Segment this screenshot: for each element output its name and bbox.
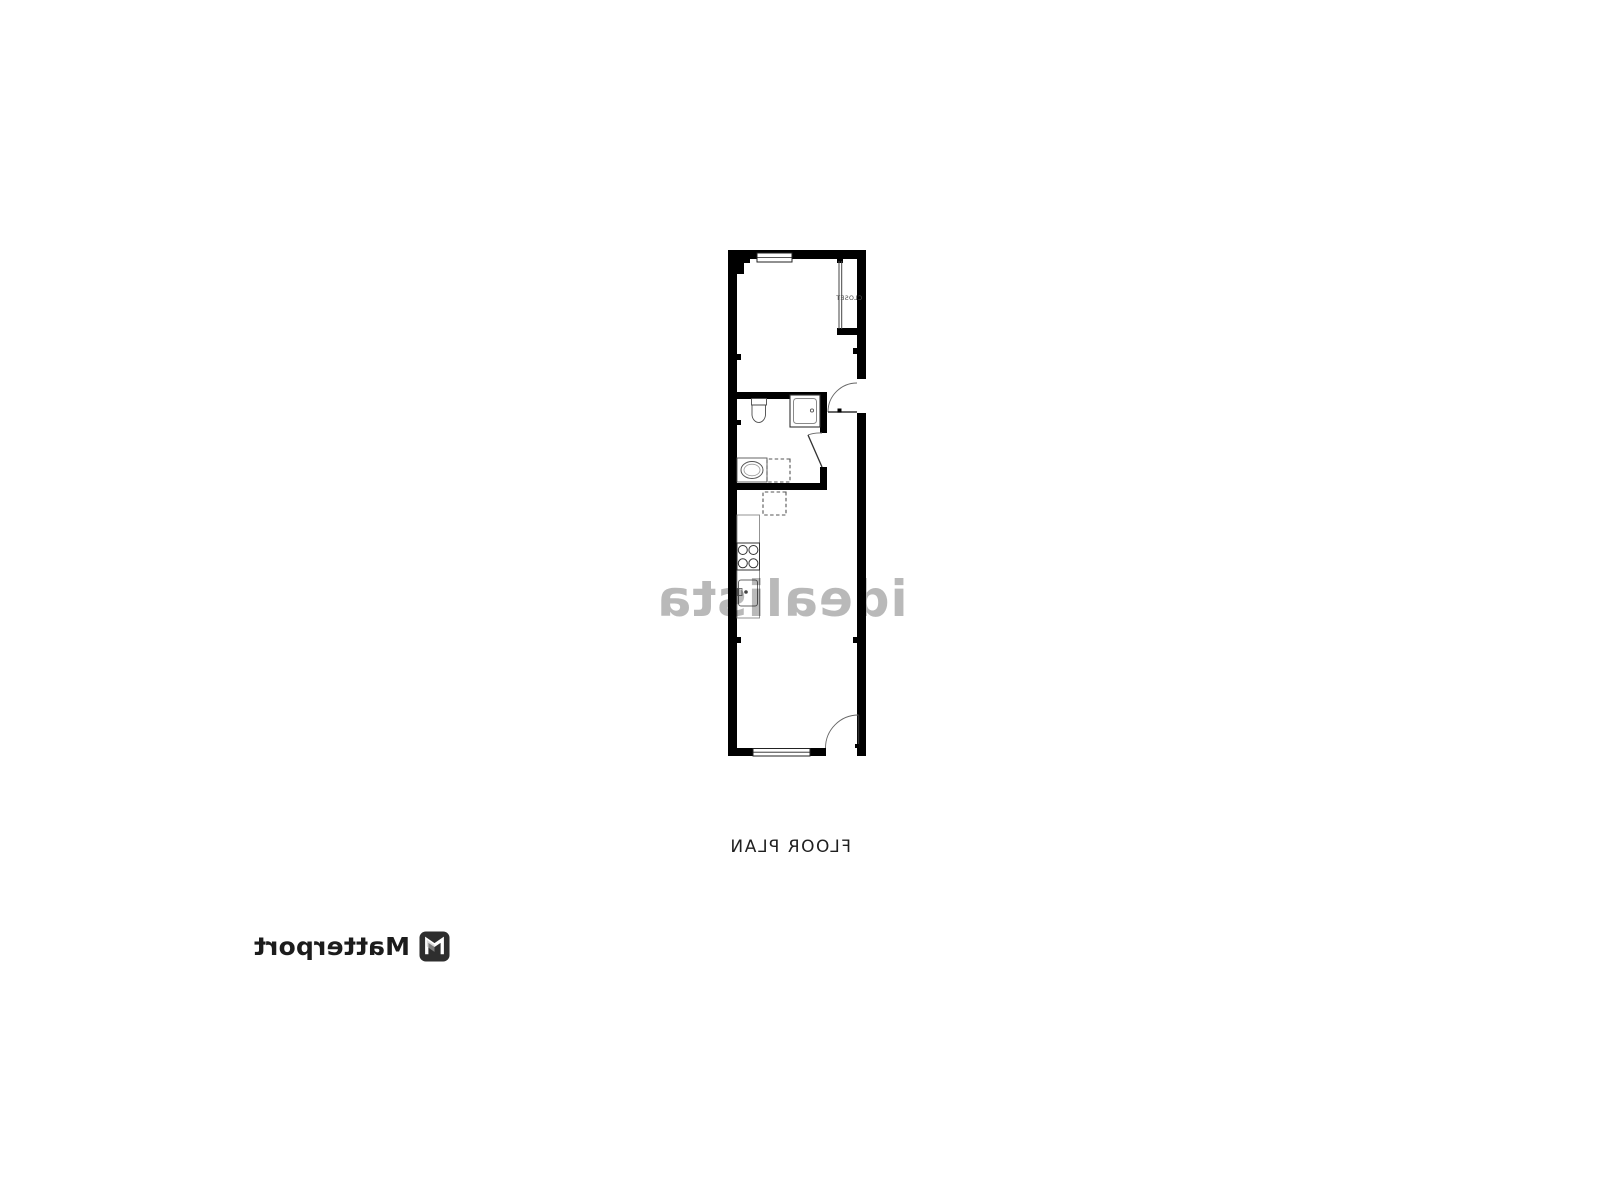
closet-label: CLOSET bbox=[836, 295, 862, 302]
idealista-watermark: idealista bbox=[654, 570, 910, 628]
matterport-wordmark: Matterport bbox=[254, 932, 410, 961]
top-window bbox=[757, 253, 792, 262]
matterport-cube-icon bbox=[419, 931, 450, 962]
corner-notch-step bbox=[729, 261, 744, 274]
plan-interior bbox=[728, 250, 866, 756]
toilet-bowl bbox=[752, 405, 766, 422]
toilet-tank bbox=[752, 399, 767, 406]
door-stop bbox=[855, 744, 859, 748]
wall-tick bbox=[737, 354, 741, 360]
shower bbox=[790, 395, 820, 427]
stove bbox=[737, 543, 760, 570]
wall-tick bbox=[853, 348, 857, 354]
toilet bbox=[752, 399, 767, 423]
bottom-window bbox=[753, 749, 810, 757]
wall-tick bbox=[737, 637, 741, 643]
floor-plan-page: CLOSET bbox=[0, 0, 1600, 1200]
floor-plan-drawing: CLOSET bbox=[724, 246, 870, 760]
wall-tick bbox=[737, 420, 741, 425]
door-stop bbox=[838, 409, 842, 413]
matterport-branding: Matterport bbox=[254, 929, 450, 963]
wall-tick bbox=[853, 637, 857, 643]
floor-plan-title: FLOOR PLAN bbox=[690, 837, 890, 857]
